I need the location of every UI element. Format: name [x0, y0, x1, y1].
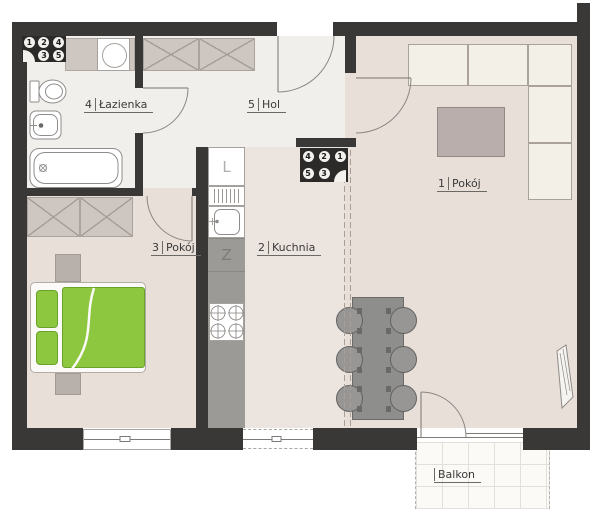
window [243, 429, 313, 449]
wall [12, 22, 277, 36]
wall [12, 428, 83, 450]
chair [390, 307, 417, 334]
legend-number: 3 [319, 168, 330, 179]
room-label-pokoj-3: 3 Pokój [151, 241, 201, 256]
wall [345, 36, 356, 73]
wardrobe-cell [80, 197, 133, 237]
room-label-hol: 5 Hol [247, 98, 286, 113]
nightstand [55, 373, 81, 395]
wall [135, 133, 143, 196]
room-number: 3 [151, 241, 163, 254]
wall [12, 22, 27, 450]
cooktop [209, 303, 244, 341]
legend-number: 1 [335, 151, 346, 162]
room-label-kuchnia: 2 Kuchnia [257, 241, 321, 256]
bedroom-wardrobe [27, 197, 133, 237]
wall [296, 138, 356, 147]
washing-machine-drum [102, 43, 127, 68]
room-number: 1 [437, 177, 449, 190]
bed-pillow [36, 290, 58, 328]
wall [333, 22, 590, 36]
floor-plan: L Z 1 2 4 3 5 4 [0, 0, 600, 509]
fridge-letter: L [222, 158, 230, 176]
fridge: L [208, 147, 245, 186]
legend-number: 5 [303, 168, 314, 179]
legend-wedge-icon [334, 170, 346, 182]
legend-badge-kitchen: 4 2 1 5 3 [300, 148, 348, 182]
room-name: Łazienka [96, 98, 147, 111]
chair [390, 346, 417, 373]
wardrobe-cell [143, 38, 199, 71]
coffee-table [437, 107, 505, 157]
chair [336, 307, 363, 334]
legend-number: 5 [53, 50, 64, 61]
wall [523, 428, 590, 450]
hall-wardrobe [143, 38, 255, 71]
nightstand [55, 254, 81, 282]
wardrobe-cell [27, 197, 80, 237]
washing-machine [97, 38, 130, 71]
kitchen-counter [208, 272, 245, 428]
sofa-section [528, 143, 572, 200]
chair [336, 385, 363, 412]
room-name: Kuchnia [269, 241, 315, 254]
room-number: 2 [257, 241, 269, 254]
balcony-label: Balkon [434, 468, 481, 483]
room-name: Hol [259, 98, 280, 111]
wall [135, 36, 143, 88]
room-label-pokoj-1: 1 Pokój [437, 177, 487, 192]
room-number: 4 [84, 98, 96, 111]
bed-duvet [62, 287, 145, 368]
legend-number: 4 [303, 151, 314, 162]
legend-number: 3 [38, 50, 49, 61]
room-name: Pokój [449, 177, 481, 190]
bed-pillow [36, 331, 58, 365]
legend-number: 1 [24, 37, 35, 48]
window [83, 429, 171, 450]
legend-badge-top-left: 1 2 4 3 5 [22, 36, 66, 62]
room-name: Pokój [163, 241, 195, 254]
sofa-corner-section [528, 44, 572, 86]
sofa-section [408, 44, 468, 86]
room-label-lazienka: 4 Łazienka [84, 98, 153, 113]
drainer-ribs [214, 189, 240, 203]
wall [12, 188, 143, 196]
dish-drainer [208, 186, 245, 206]
sofa-section [528, 86, 572, 143]
sofa-section [468, 44, 528, 86]
balcony-name: Balkon [435, 468, 475, 481]
wall [196, 147, 208, 428]
wall [313, 428, 417, 450]
chair [390, 385, 417, 412]
legend-wedge-icon [23, 50, 35, 62]
legend-number: 2 [38, 37, 49, 48]
legend-number: 4 [53, 37, 64, 48]
legend-number: 2 [319, 151, 330, 162]
wardrobe-cell [199, 38, 255, 71]
chair [336, 346, 363, 373]
wall [577, 3, 590, 450]
balcony-glazing [417, 428, 523, 442]
dishwasher: Z [208, 238, 245, 272]
dishwasher-letter: Z [221, 246, 231, 264]
kitchen-sink-unit [208, 206, 245, 238]
wall [171, 428, 243, 450]
room-number: 5 [247, 98, 259, 111]
